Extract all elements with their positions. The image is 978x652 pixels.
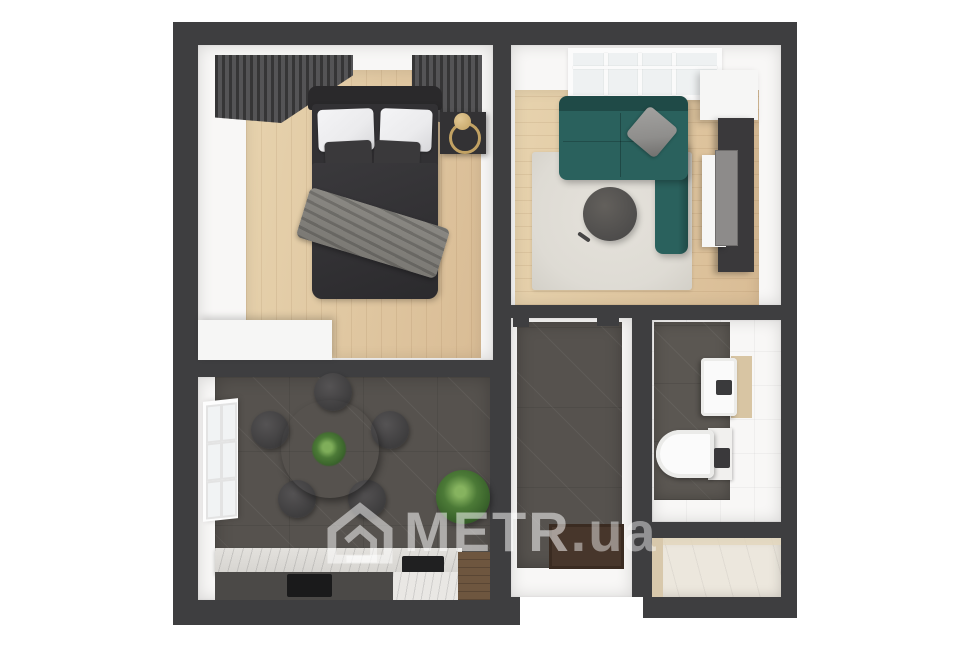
table-plant bbox=[312, 432, 346, 466]
room-closet bbox=[652, 538, 781, 597]
closet-beige-wall bbox=[652, 538, 663, 597]
bottom-right-notch bbox=[643, 618, 797, 652]
sofa-seam bbox=[620, 113, 621, 177]
window-transom bbox=[573, 66, 717, 69]
wood-floor-strip bbox=[458, 552, 490, 600]
potted-plant bbox=[436, 470, 490, 524]
floor-plan: METR.ua bbox=[0, 0, 978, 652]
white-cabinet bbox=[700, 70, 758, 120]
entry-notch bbox=[520, 597, 643, 652]
room-hallway bbox=[511, 318, 632, 597]
room-bathroom bbox=[652, 320, 781, 522]
door-frame-mark bbox=[597, 318, 619, 326]
room-bedroom bbox=[198, 45, 493, 360]
wardrobe bbox=[198, 320, 332, 360]
room-kitchen-dining bbox=[198, 377, 490, 600]
room-living bbox=[511, 45, 781, 305]
faucet bbox=[716, 380, 732, 395]
round-coffee-table bbox=[583, 187, 637, 241]
flush-plate bbox=[714, 448, 730, 468]
kitchen-sink bbox=[402, 556, 444, 573]
marble-counter-section bbox=[393, 572, 462, 600]
toilet bbox=[656, 430, 714, 478]
doormat bbox=[549, 524, 624, 569]
window-mullion bbox=[604, 53, 608, 95]
brass-lamp-base bbox=[454, 113, 471, 130]
tv-screen bbox=[715, 150, 738, 246]
door-frame-mark bbox=[513, 318, 529, 327]
window-mullion bbox=[672, 53, 676, 95]
kitchen-window bbox=[203, 398, 238, 522]
closet-wall-top bbox=[652, 538, 781, 545]
living-window bbox=[568, 48, 722, 100]
cooktop bbox=[287, 574, 332, 597]
window-mullion bbox=[638, 53, 642, 95]
